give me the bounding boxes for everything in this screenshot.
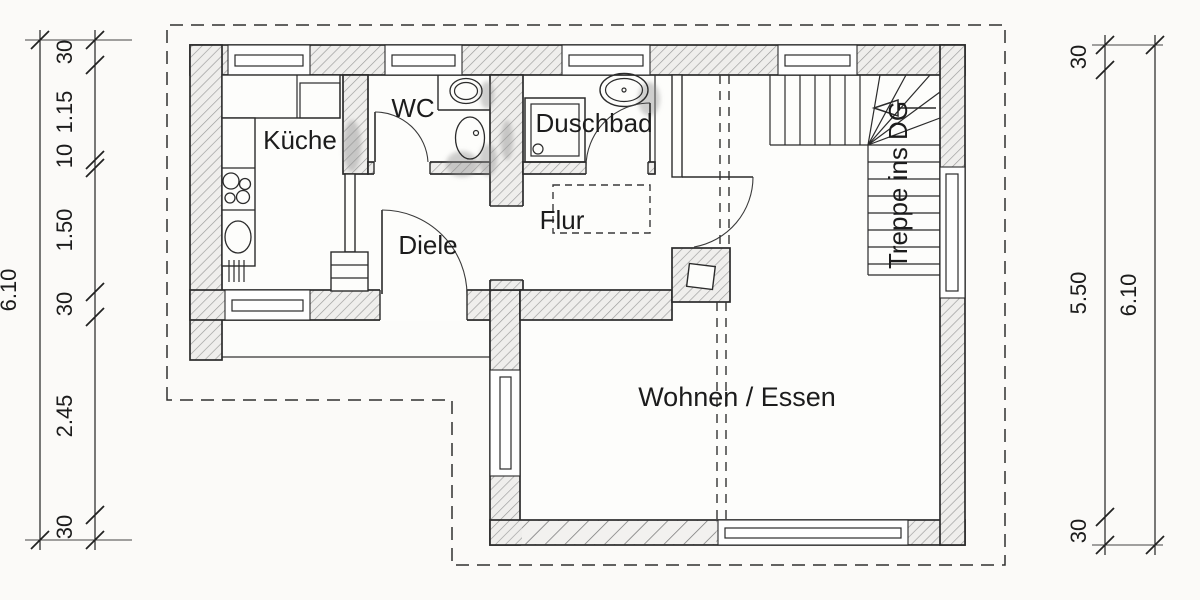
room-label-diele: Diele (398, 230, 457, 260)
room-label-kueche: Küche (263, 125, 337, 155)
dim-right-seg-0: 30 (1066, 45, 1091, 69)
room-label-wc: WC (391, 93, 434, 123)
dim-left-seg-3: 1.50 (52, 209, 77, 252)
wall-texture-stone (522, 521, 716, 544)
room-label-treppe: Treppe ins DG (883, 101, 913, 269)
dim-left-seg-4: 30 (52, 292, 77, 316)
window-top-kueche (228, 45, 310, 75)
partition-kueche-diele (345, 174, 355, 252)
dim-left-total: 6.10 (0, 269, 21, 312)
dim-left-seg-6: 30 (52, 515, 77, 539)
room-label-wohnen-essen: Wohnen / Essen (638, 382, 836, 412)
room-label-duschbad: Duschbad (535, 108, 652, 138)
dim-right-seg-2: 30 (1066, 519, 1091, 543)
dim-left-seg-2: 10 (52, 144, 77, 168)
dim-right-total: 6.10 (1116, 274, 1141, 317)
window-wohnen-bottom (718, 520, 908, 545)
window-wohnen-left (490, 370, 520, 476)
chimney-flue (687, 263, 716, 289)
wall-flur-bottom (520, 290, 672, 320)
dim-left-seg-1: 1.15 (52, 91, 77, 134)
floor-plan-page: Küche WC Duschbad Flur Diele Wohnen / Es… (0, 0, 1200, 600)
window-top-duschbad (562, 45, 650, 75)
kitchen-counter-top (222, 75, 340, 118)
floor-plan-drawing: Küche WC Duschbad Flur Diele Wohnen / Es… (0, 0, 1200, 600)
window-top-treppe (778, 45, 857, 75)
room-label-flur: Flur (540, 205, 585, 235)
window-kueche-south (225, 290, 310, 320)
dim-left-seg-5: 2.45 (52, 395, 77, 438)
entrance-steps (331, 252, 368, 291)
window-top-wc (385, 45, 462, 75)
window-stairs-right (940, 167, 965, 298)
dim-left-seg-0: 30 (52, 40, 77, 64)
entrance-landing (215, 320, 490, 357)
partition-flur-right (672, 75, 682, 177)
dim-right-seg-1: 5.50 (1066, 272, 1091, 315)
